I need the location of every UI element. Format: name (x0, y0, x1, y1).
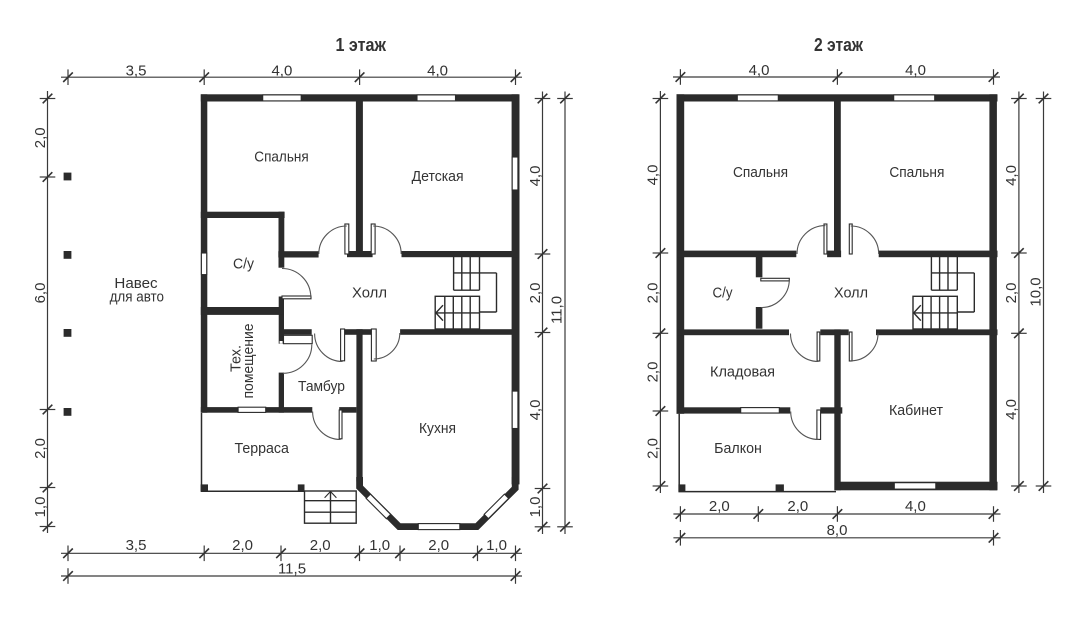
svg-text:4,0: 4,0 (905, 498, 926, 515)
svg-text:2,0: 2,0 (310, 537, 331, 554)
svg-text:2,0: 2,0 (645, 283, 662, 304)
svg-text:1 этаж: 1 этаж (335, 35, 386, 55)
svg-text:4,0: 4,0 (905, 62, 926, 79)
svg-text:3,5: 3,5 (126, 62, 147, 79)
svg-text:2,0: 2,0 (645, 362, 662, 383)
svg-text:Кабинет: Кабинет (889, 402, 943, 419)
svg-text:2,0: 2,0 (645, 438, 662, 459)
svg-text:Кухня: Кухня (419, 420, 456, 437)
svg-text:11,5: 11,5 (278, 561, 306, 578)
svg-text:1,0: 1,0 (32, 497, 49, 518)
svg-text:2,0: 2,0 (428, 537, 449, 554)
svg-text:Детская: Детская (412, 168, 464, 185)
svg-text:Тамбур: Тамбур (298, 378, 345, 395)
svg-text:4,0: 4,0 (1003, 399, 1020, 420)
svg-text:4,0: 4,0 (645, 165, 662, 186)
svg-text:Спальня: Спальня (733, 164, 788, 181)
svg-text:2,0: 2,0 (1003, 283, 1020, 304)
svg-text:4,0: 4,0 (527, 400, 544, 421)
svg-text:помещение: помещение (240, 324, 257, 399)
svg-text:4,0: 4,0 (527, 166, 544, 187)
svg-text:2,0: 2,0 (32, 438, 49, 459)
svg-text:2,0: 2,0 (232, 537, 253, 554)
svg-text:С/у: С/у (233, 256, 254, 273)
svg-text:4,0: 4,0 (427, 62, 448, 79)
svg-text:4,0: 4,0 (1003, 165, 1020, 186)
svg-text:Спальня: Спальня (254, 148, 308, 165)
svg-text:2,0: 2,0 (787, 498, 808, 515)
svg-text:Балкон: Балкон (714, 440, 762, 457)
svg-text:Кладовая: Кладовая (710, 364, 775, 381)
svg-text:10,0: 10,0 (1028, 277, 1045, 306)
svg-text:3,5: 3,5 (126, 537, 147, 554)
svg-text:Холл: Холл (834, 285, 868, 302)
svg-text:2,0: 2,0 (32, 127, 49, 148)
svg-text:2,0: 2,0 (709, 498, 730, 515)
svg-text:6,0: 6,0 (32, 283, 49, 304)
svg-text:1,0: 1,0 (369, 537, 390, 554)
svg-text:для авто: для авто (110, 289, 164, 306)
svg-text:2,0: 2,0 (527, 283, 544, 304)
svg-text:2 этаж: 2 этаж (814, 35, 863, 55)
svg-text:1,0: 1,0 (527, 497, 544, 518)
svg-text:С/у: С/у (713, 285, 733, 302)
svg-text:Спальня: Спальня (889, 164, 944, 181)
svg-text:4,0: 4,0 (749, 62, 770, 79)
svg-text:11,0: 11,0 (549, 296, 566, 324)
svg-text:Терраса: Терраса (234, 440, 289, 457)
svg-text:1,0: 1,0 (486, 537, 507, 554)
svg-text:Холл: Холл (352, 285, 387, 302)
svg-text:8,0: 8,0 (827, 522, 848, 539)
svg-text:4,0: 4,0 (271, 62, 292, 79)
